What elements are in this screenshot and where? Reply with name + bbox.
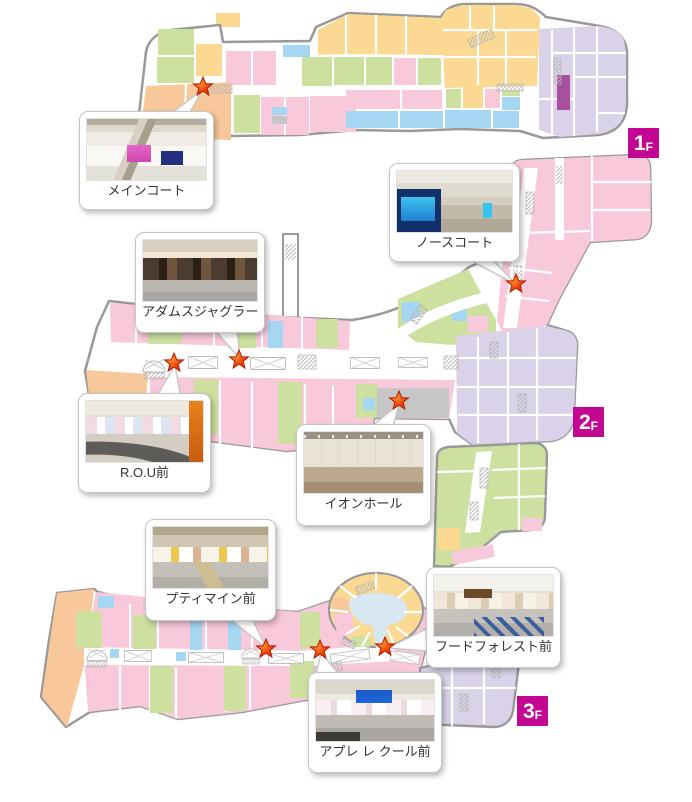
callout-rou[interactable]: R.O.U前: [78, 393, 211, 493]
callout-adams-juggler[interactable]: アダムスジャグラー前: [135, 232, 265, 333]
walkway-icon: [250, 358, 285, 370]
callout-food-forest[interactable]: フードフォレスト前: [426, 567, 561, 668]
callout-main-court[interactable]: メインコート: [79, 111, 214, 210]
walkway-icon: [268, 653, 303, 663]
callout-label: アプレ レ クール前: [315, 742, 435, 762]
floor-suffix: F: [646, 140, 653, 154]
callout-north-court[interactable]: ノースコート: [389, 163, 520, 262]
floor-badge-1f: 1F: [628, 128, 659, 158]
floor-suffix: F: [535, 708, 542, 722]
photo-adams-juggler: [142, 239, 258, 302]
floor-badge-2f: 2F: [573, 407, 604, 437]
callout-label: プティマイン前: [152, 589, 269, 609]
walkway-icon: [188, 357, 217, 369]
mall-floor-map-page: メインコート ノースコート アダムスジャグラー前 R.O.U前 イオンホール プ…: [0, 0, 692, 802]
callout-aeon-hall[interactable]: イオンホール: [296, 424, 431, 526]
floor-number: 1: [634, 133, 646, 154]
photo-aeon-hall: [303, 431, 424, 494]
photo-main-court: [86, 118, 207, 181]
photo-north-court: [396, 170, 513, 233]
photo-apres-les-cours: [315, 679, 435, 742]
floor-badge-3f: 3F: [517, 696, 548, 726]
floor-number: 3: [523, 701, 535, 722]
photo-rou: [85, 400, 204, 463]
walkway-icon: [188, 652, 223, 662]
walkway-icon: [124, 650, 151, 661]
floor-number: 2: [579, 412, 591, 433]
callout-label: R.O.U前: [85, 463, 204, 483]
callout-petit-main[interactable]: プティマイン前: [145, 519, 276, 621]
callout-label: フードフォレスト前: [433, 637, 554, 657]
photo-food-forest: [433, 574, 554, 637]
callout-label: メインコート: [86, 181, 207, 201]
callout-label: イオンホール: [303, 494, 424, 514]
callout-apres-les-cours[interactable]: アプレ レ クール前: [308, 672, 442, 773]
callout-label: アダムスジャグラー前: [142, 302, 258, 322]
floor-suffix: F: [591, 419, 598, 433]
photo-petit-main: [152, 526, 269, 589]
walkway-icon: [350, 357, 379, 368]
callout-label: ノースコート: [396, 233, 513, 253]
walkway-icon: [398, 357, 427, 367]
